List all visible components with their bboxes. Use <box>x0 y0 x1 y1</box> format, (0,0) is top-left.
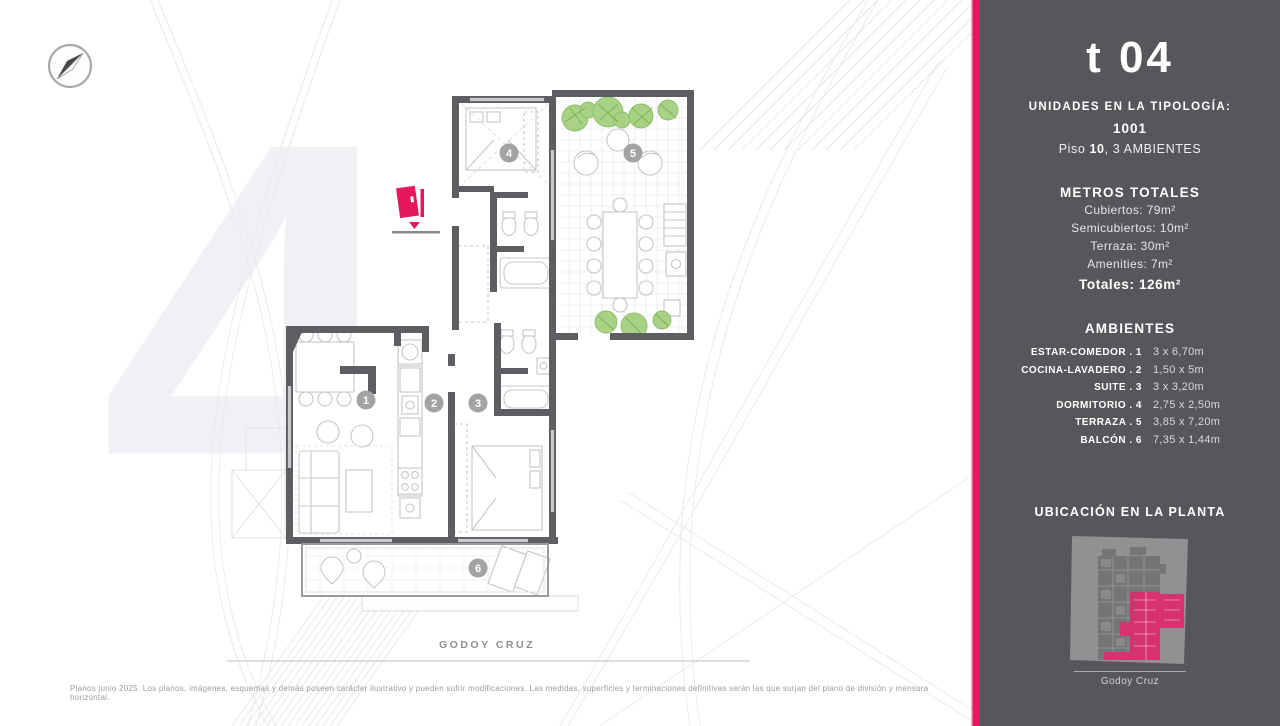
disclaimer-text: Planos junio 2025. Los planos, imágenes,… <box>70 684 938 702</box>
room-label-5: 5 <box>624 144 643 163</box>
metros-total: Totales: 126m² <box>980 276 1280 293</box>
ambiente-row: ESTAR-COMEDOR . 1 3 x 6,70m <box>980 344 1280 362</box>
svg-text:2: 2 <box>431 398 437 410</box>
room-label-2: 2 <box>425 394 444 413</box>
svg-text:4: 4 <box>506 148 513 160</box>
ambiente-label: TERRAZA . 5 <box>980 414 1142 432</box>
ambiente-value: 7,35 x 1,44m <box>1153 432 1220 450</box>
ubicacion-heading: UBICACIÓN EN LA PLANTA <box>980 505 1280 520</box>
ambientes-table: ESTAR-COMEDOR . 1 3 x 6,70m COCINA-LAVAD… <box>980 344 1280 449</box>
accent-bar <box>971 0 980 726</box>
location-minimap <box>1068 530 1192 666</box>
ambientes-heading: AMBIENTES <box>980 321 1280 337</box>
metros-heading: METROS TOTALES <box>980 185 1280 201</box>
ambiente-label: ESTAR-COMEDOR . 1 <box>980 344 1142 362</box>
ambiente-row: COCINA-LAVADERO . 2 1,50 x 5m <box>980 362 1280 380</box>
ambiente-value: 3 x 6,70m <box>1153 344 1204 362</box>
ambiente-row: DORMITORIO . 4 2,75 x 2,50m <box>980 397 1280 415</box>
typology-sheet: 4 <box>0 0 1280 726</box>
compass-icon <box>49 45 91 87</box>
room-label-3: 3 <box>469 394 488 413</box>
ambiente-value: 3 x 3,20m <box>1153 379 1204 397</box>
info-sidebar: t 04 UNIDADES EN LA TIPOLOGÍA: 1001 Piso… <box>980 0 1280 726</box>
units-heading: UNIDADES EN LA TIPOLOGÍA: <box>980 100 1280 114</box>
ambiente-row: TERRAZA . 5 3,85 x 7,20m <box>980 414 1280 432</box>
floor-number: 10 <box>1089 142 1104 156</box>
room-label-6: 6 <box>469 559 488 578</box>
ambiente-label: COCINA-LAVADERO . 2 <box>980 362 1142 380</box>
ambiente-value: 2,75 x 2,50m <box>1153 397 1220 415</box>
unit-number: 1001 <box>980 121 1280 137</box>
room-label-4: 4 <box>500 144 519 163</box>
ambiente-value: 3,85 x 7,20m <box>1153 414 1220 432</box>
minimap-street-label: Godoy Cruz <box>980 676 1280 688</box>
floor-info: Piso 10, 3 AMBIENTES <box>980 142 1280 157</box>
metros-amenities: Amenities: 7m² <box>980 255 1280 273</box>
svg-text:1: 1 <box>363 395 369 407</box>
ambiente-label: SUITE . 3 <box>980 379 1142 397</box>
floor-plan-area: 4 <box>0 0 980 726</box>
ambiente-row: BALCÓN . 6 7,35 x 1,44m <box>980 432 1280 450</box>
minimap-divider <box>1074 671 1186 672</box>
metros-terraza: Terraza: 30m² <box>980 237 1280 255</box>
floor-label: Piso <box>1059 142 1090 156</box>
room-label-1: 1 <box>357 391 376 410</box>
svg-text:5: 5 <box>630 148 636 160</box>
metros-semicubiertos: Semicubiertos: 10m² <box>980 219 1280 237</box>
floor-rest: , 3 AMBIENTES <box>1105 142 1202 156</box>
ambiente-row: SUITE . 3 3 x 3,20m <box>980 379 1280 397</box>
ambiente-value: 1,50 x 5m <box>1153 362 1204 380</box>
street-label: GODOY CRUZ <box>439 639 535 651</box>
ambiente-label: BALCÓN . 6 <box>980 432 1142 450</box>
svg-text:6: 6 <box>475 563 481 575</box>
metros-cubiertos: Cubiertos: 79m² <box>980 201 1280 219</box>
floor-plan-svg: 4 <box>0 0 980 726</box>
svg-text:3: 3 <box>475 398 481 410</box>
typology-title: t 04 <box>980 34 1280 82</box>
ambiente-label: DORMITORIO . 4 <box>980 397 1142 415</box>
